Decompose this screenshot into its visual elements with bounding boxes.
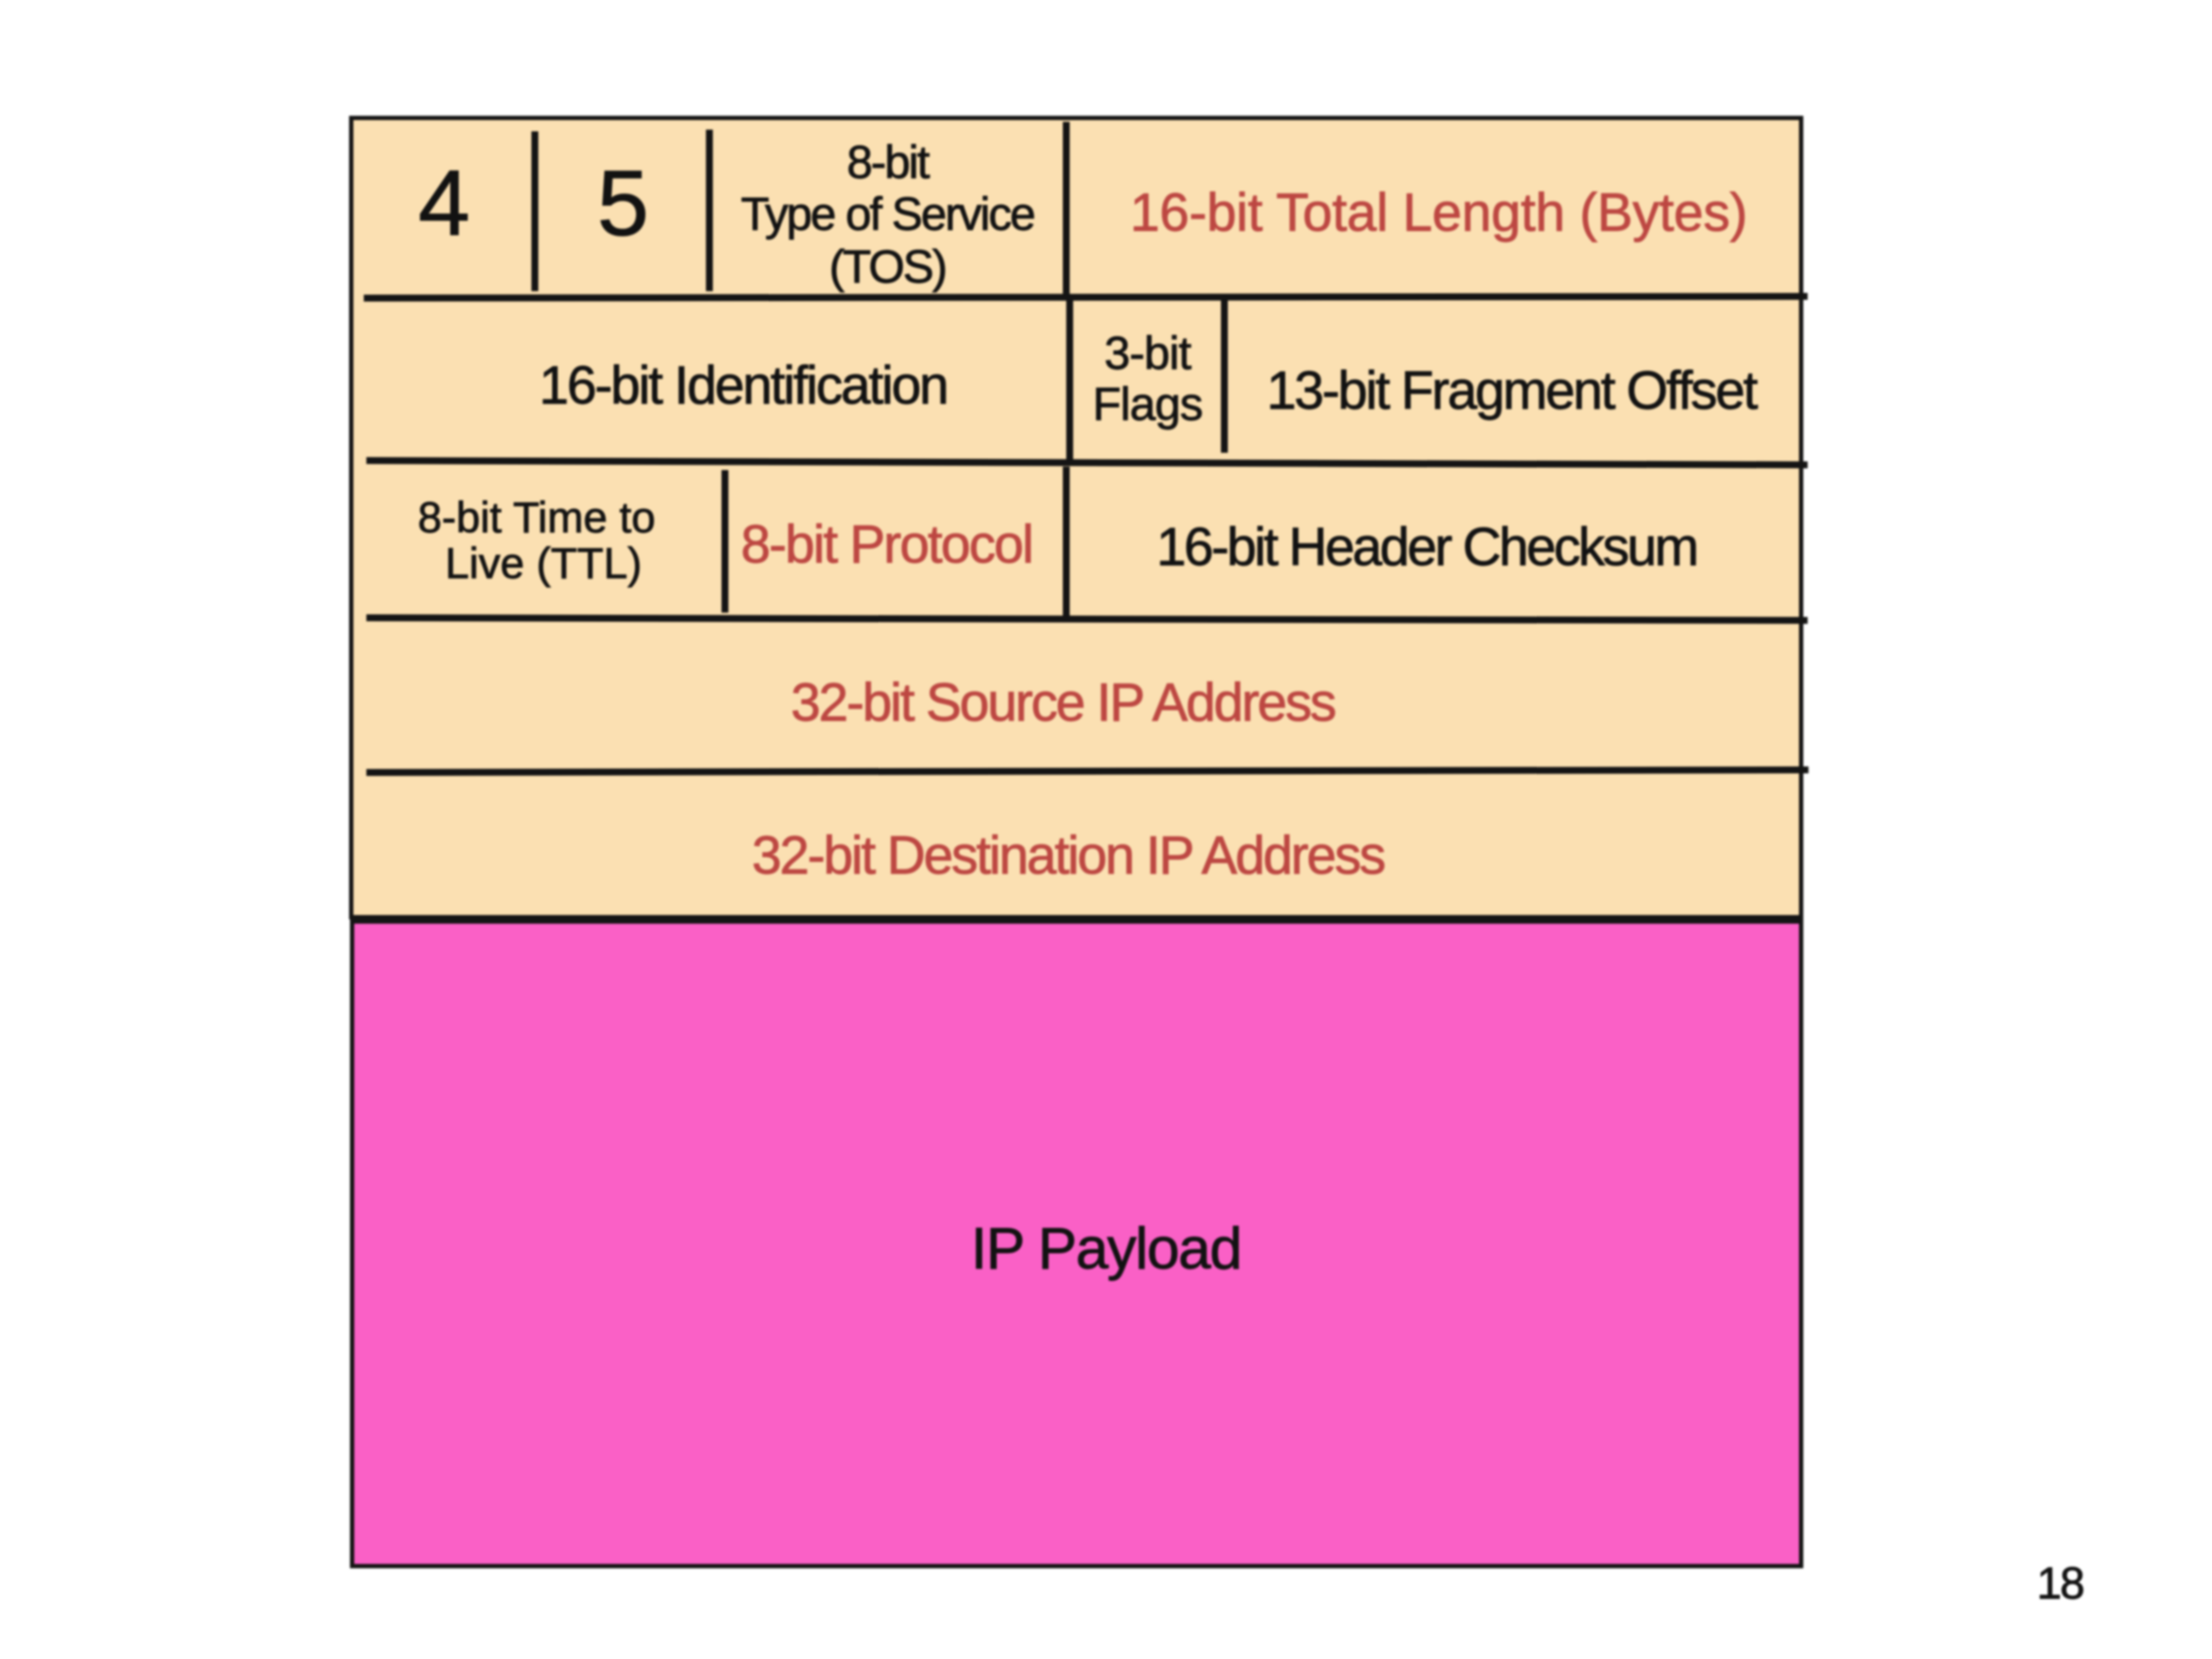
svg-text:32-bit Source IP Address: 32-bit Source IP Address [791,673,1335,733]
svg-text:3-bit: 3-bit [1104,327,1192,379]
svg-text:4: 4 [418,150,470,255]
svg-text:16-bit Header Checksum: 16-bit Header Checksum [1156,518,1696,577]
svg-text:16-bit Total Length (Bytes): 16-bit Total Length (Bytes) [1130,183,1748,243]
svg-text:8-bit Protocol: 8-bit Protocol [741,515,1032,575]
svg-text:16-bit Identification: 16-bit Identification [539,356,947,416]
svg-text:8-bit: 8-bit [847,137,930,188]
svg-text:Flags: Flags [1092,378,1202,430]
svg-text:Live (TTL): Live (TTL) [445,539,642,588]
svg-text:Type of Service: Type of Service [741,188,1033,240]
svg-text:13-bit Fragment Offset: 13-bit Fragment Offset [1267,361,1758,421]
svg-text:5: 5 [597,150,649,255]
svg-text:8-bit Time to: 8-bit Time to [417,493,655,542]
svg-text:(TOS): (TOS) [829,241,946,293]
svg-text:18: 18 [2037,1559,2083,1609]
svg-text:32-bit Destination IP Address: 32-bit Destination IP Address [752,826,1384,886]
svg-text:IP Payload: IP Payload [971,1216,1242,1281]
